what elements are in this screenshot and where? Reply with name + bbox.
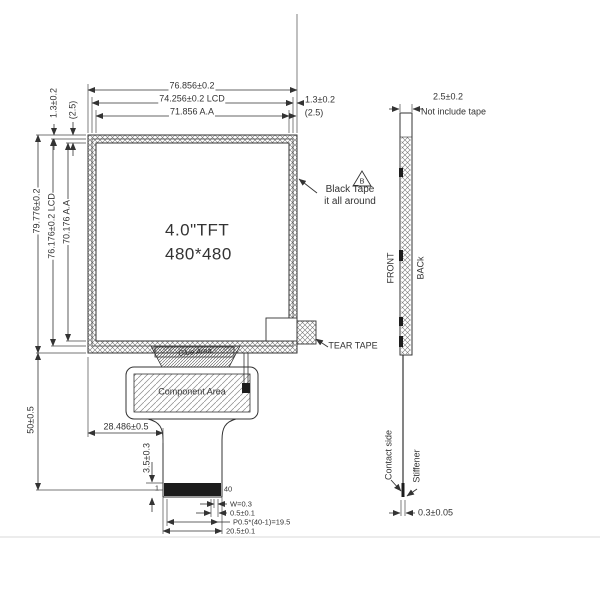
drawing-canvas <box>0 0 600 600</box>
side-view <box>399 113 412 497</box>
dim-tail-width: 20.5±0.1 <box>225 527 256 535</box>
contact-side-label: Contact side <box>385 430 394 480</box>
dim-stiffener-thickness: 0.3±0.05 <box>417 509 454 518</box>
dim-pitch: 0.5±0.1 <box>229 509 256 517</box>
black-tape-label-line1: Black Tape <box>326 185 375 195</box>
dim-left-aa-margin: (2.5) <box>69 100 78 121</box>
black-tape-label-line2: it all around <box>324 197 376 207</box>
front-side-label: FRONT <box>387 253 396 284</box>
tear-tape-label: TEAR TAPE <box>328 342 377 351</box>
pin-40-label: 40 <box>224 485 232 493</box>
dim-lcd-width: 74.256±0.2 LCD <box>158 95 225 104</box>
lcd-outline-drawing: 76.856±0.2 74.256±0.2 LCD 71.856 A.A 1.3… <box>0 0 600 600</box>
component-area-label: Component Area <box>158 388 226 397</box>
corner-box <box>266 318 297 341</box>
active-area <box>96 143 289 341</box>
dim-fpc-offset: 28.486±0.5 <box>103 423 150 432</box>
dim-left-border: 1.3±0.2 <box>50 87 59 119</box>
thickness-note: Not include tape <box>421 108 486 117</box>
dim-contact-length: 3.5±0.3 <box>143 442 152 474</box>
dim-aa-height: 70.176 A.A <box>63 199 72 245</box>
contact-bar <box>164 483 221 496</box>
pin-1-label: 1 <box>155 484 159 492</box>
back-side-label: BACk <box>417 256 426 279</box>
dim-right-border: 1.3±0.2 <box>304 96 336 105</box>
side-stiffener <box>402 483 405 497</box>
stiffener-label: Stiffener <box>413 449 422 482</box>
dim-aa-width: 71.856 A.A <box>169 108 215 117</box>
dim-lcd-height: 76.176±0.2 LCD <box>48 192 57 259</box>
dim-thickness: 2.5±0.2 <box>432 93 464 102</box>
dim-right-aa-margin: (2.5) <box>304 109 325 118</box>
dim-pad-width: W=0.3 <box>229 500 253 508</box>
display-resolution-label: 480*480 <box>165 246 232 263</box>
display-size-label: 4.0"TFT <box>165 222 229 239</box>
dim-fpc-length: 50±0.5 <box>27 405 36 434</box>
dim-overall-width: 76.856±0.2 <box>169 82 216 91</box>
dim-pitch-total: P0.5*(40-1)=19.5 <box>232 518 291 526</box>
tear-tape-tab <box>297 321 316 344</box>
small-jumper-pad <box>242 383 250 393</box>
dim-overall-height: 79.776±0.2 <box>33 188 42 235</box>
